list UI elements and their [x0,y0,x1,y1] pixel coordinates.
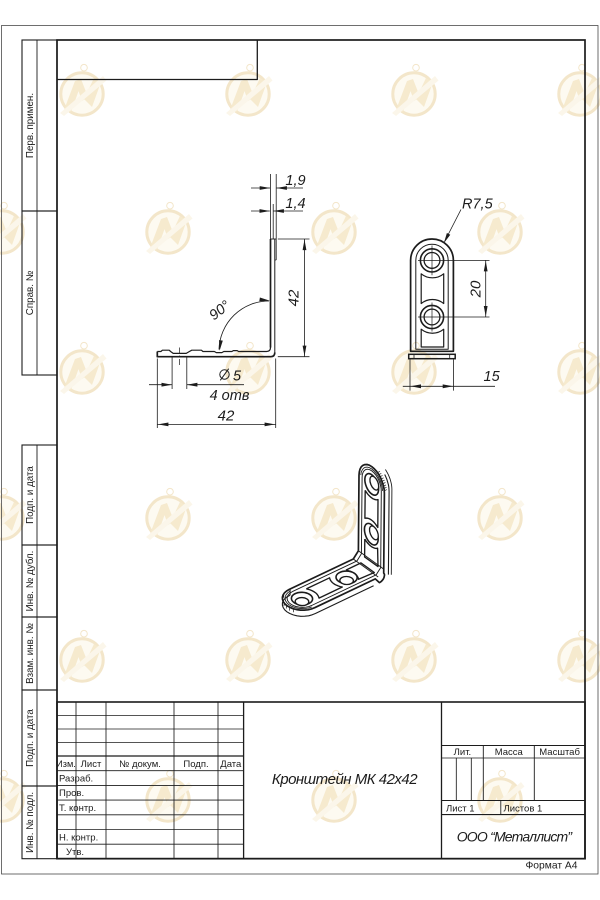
svg-text:Масштаб: Масштаб [539,747,580,758]
svg-text:Пров.: Пров. [59,788,84,799]
svg-text:Инв. № дубл.: Инв. № дубл. [25,551,36,612]
svg-text:Кронштейн МК 42х42: Кронштейн МК 42х42 [272,771,418,788]
svg-text:ООО “Металлист”: ООО “Металлист” [457,829,574,845]
svg-text:Подп. и дата: Подп. и дата [25,709,36,767]
svg-text:Т. контр.: Т. контр. [59,803,96,814]
svg-text:Изм.: Изм. [56,759,76,769]
svg-text:1,9: 1,9 [285,173,305,189]
svg-text:15: 15 [484,369,501,385]
svg-text:Лист: Лист [81,759,102,770]
svg-text:Разраб.: Разраб. [59,774,93,785]
svg-text:42: 42 [218,408,235,425]
svg-text:4 отв: 4 отв [210,388,250,404]
svg-text:R7,5: R7,5 [462,197,494,213]
svg-text:Взам. инв. №: Взам. инв. № [25,623,36,684]
svg-text:Лит.: Лит. [454,747,471,758]
svg-text:Подп.: Подп. [183,759,208,770]
svg-text:Формат А4: Формат А4 [525,861,577,872]
svg-text:Листов 1: Листов 1 [504,803,543,814]
svg-text:5: 5 [233,369,242,385]
svg-text:1,4: 1,4 [285,196,305,212]
svg-text:42: 42 [286,289,303,306]
svg-text:Дата: Дата [220,759,242,770]
svg-text:Подп. и дата: Подп. и дата [25,466,36,524]
svg-text:Утв.: Утв. [66,847,84,858]
svg-text:Масса: Масса [495,747,524,758]
svg-text:20: 20 [468,280,485,298]
svg-text:Справ. №: Справ. № [25,271,36,315]
svg-text:Лист 1: Лист 1 [446,803,475,814]
svg-text:Н. контр.: Н. контр. [59,833,98,844]
svg-text:Инв. № подл.: Инв. № подл. [25,792,36,853]
svg-text:Перв. примен.: Перв. примен. [25,93,36,158]
svg-text:№ докум.: № докум. [119,759,161,770]
